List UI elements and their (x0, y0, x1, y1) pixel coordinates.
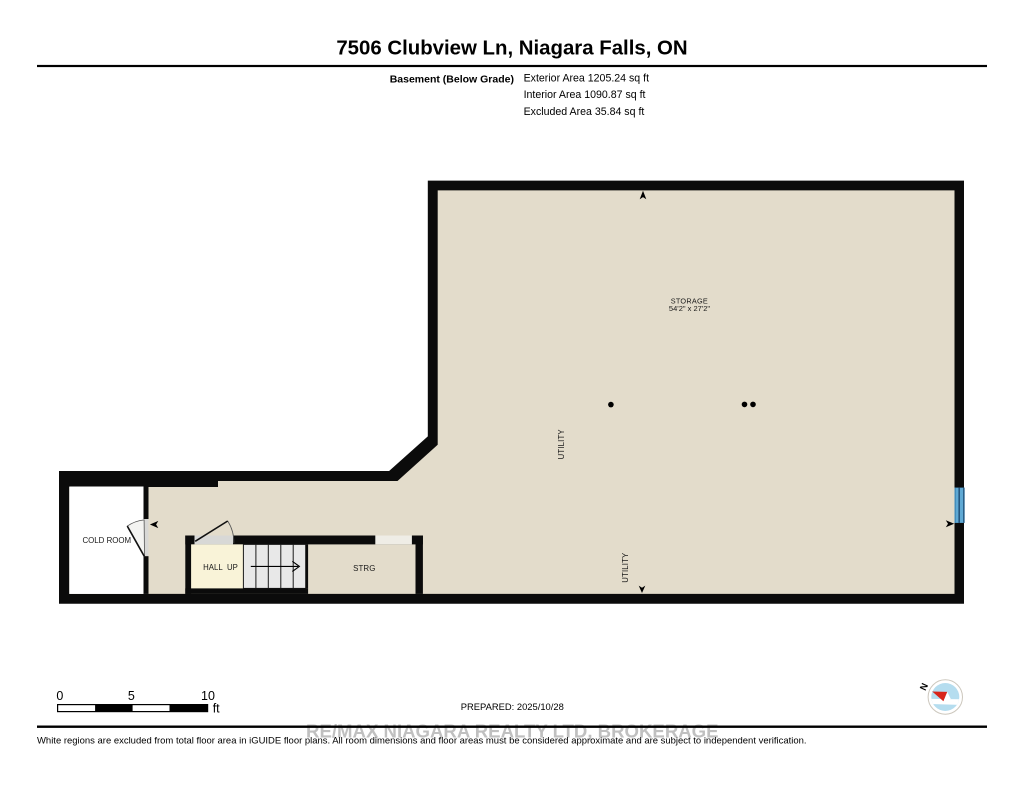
svg-text:UTILITY: UTILITY (557, 429, 566, 460)
svg-text:HALL UP: HALL UP (203, 563, 238, 572)
svg-text:5: 5 (128, 689, 135, 703)
svg-text:0: 0 (56, 689, 63, 703)
svg-text:54'2" x 27'2": 54'2" x 27'2" (669, 304, 710, 313)
svg-text:STRG: STRG (353, 564, 375, 573)
svg-text:ft: ft (213, 702, 220, 716)
svg-text:PREPARED: 2025/10/28: PREPARED: 2025/10/28 (461, 701, 564, 712)
svg-text:COLD ROOM: COLD ROOM (82, 536, 131, 545)
svg-text:UTILITY: UTILITY (621, 552, 630, 583)
svg-text:White regions are excluded fro: White regions are excluded from total fl… (37, 736, 806, 747)
svg-text:Excluded Area 35.84 sq ft: Excluded Area 35.84 sq ft (524, 106, 645, 118)
svg-text:Basement (Below Grade): Basement (Below Grade) (390, 73, 514, 85)
svg-text:7506 Clubview Ln, Niagara Fall: 7506 Clubview Ln, Niagara Falls, ON (336, 37, 687, 59)
svg-text:Exterior Area 1205.24 sq ft: Exterior Area 1205.24 sq ft (524, 73, 649, 85)
svg-text:Interior Area 1090.87 sq ft: Interior Area 1090.87 sq ft (524, 89, 646, 101)
